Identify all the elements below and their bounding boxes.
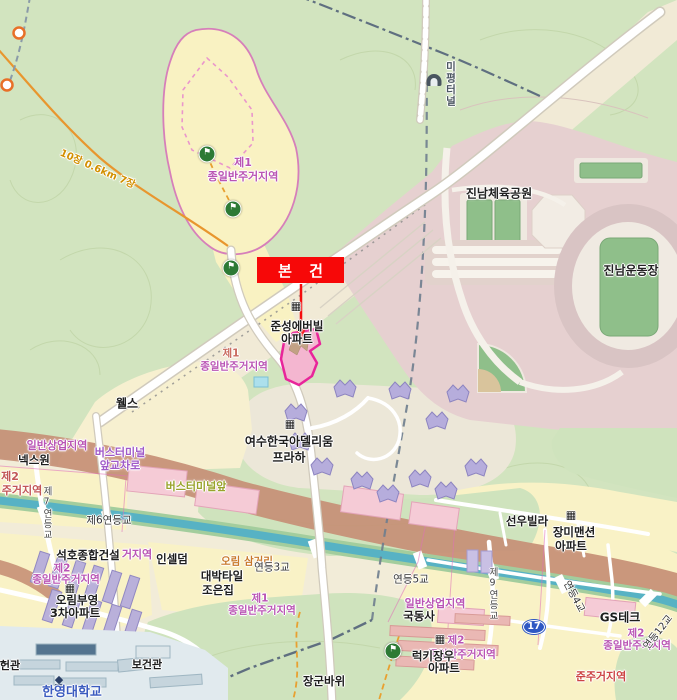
jinnam-sports-park-area <box>330 97 677 430</box>
subject-property-callout: 본 건 <box>257 257 344 283</box>
trail-waypoint-marker <box>2 80 13 91</box>
map-canvas[interactable] <box>0 0 677 700</box>
trail-waypoint-marker <box>14 28 25 39</box>
subject-property-label: 본 건 <box>278 260 329 281</box>
map-screenshot: ⚑⚑⚑⚑▦▦▦▦▦◆17 제1종일반주거지역진남체육공원진남운동장미평터널10장… <box>0 0 677 700</box>
